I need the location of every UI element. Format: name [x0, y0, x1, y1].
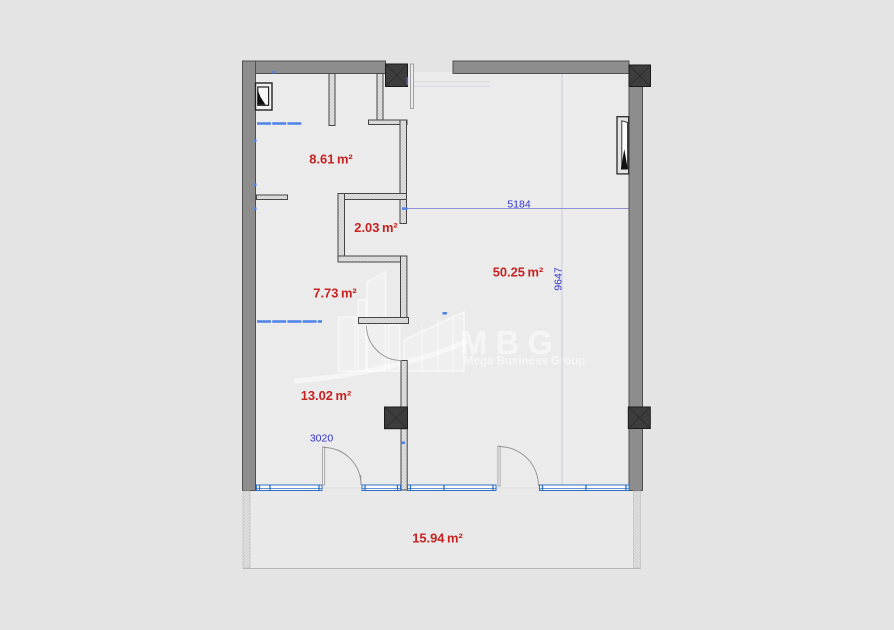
svg-text:8.61 m²: 8.61 m² [309, 152, 353, 167]
svg-text:50.25 m²: 50.25 m² [493, 265, 544, 280]
svg-text:5184: 5184 [507, 199, 531, 211]
svg-text:3020: 3020 [310, 432, 334, 444]
svg-text:2.03 m²: 2.03 m² [354, 220, 398, 235]
svg-text:7.73 m²: 7.73 m² [313, 286, 357, 301]
svg-text:9647: 9647 [553, 267, 565, 291]
svg-text:15.94 m²: 15.94 m² [412, 531, 463, 546]
svg-text:13.02 m²: 13.02 m² [301, 388, 352, 403]
svg-text:Mega Business Group: Mega Business Group [464, 356, 585, 368]
